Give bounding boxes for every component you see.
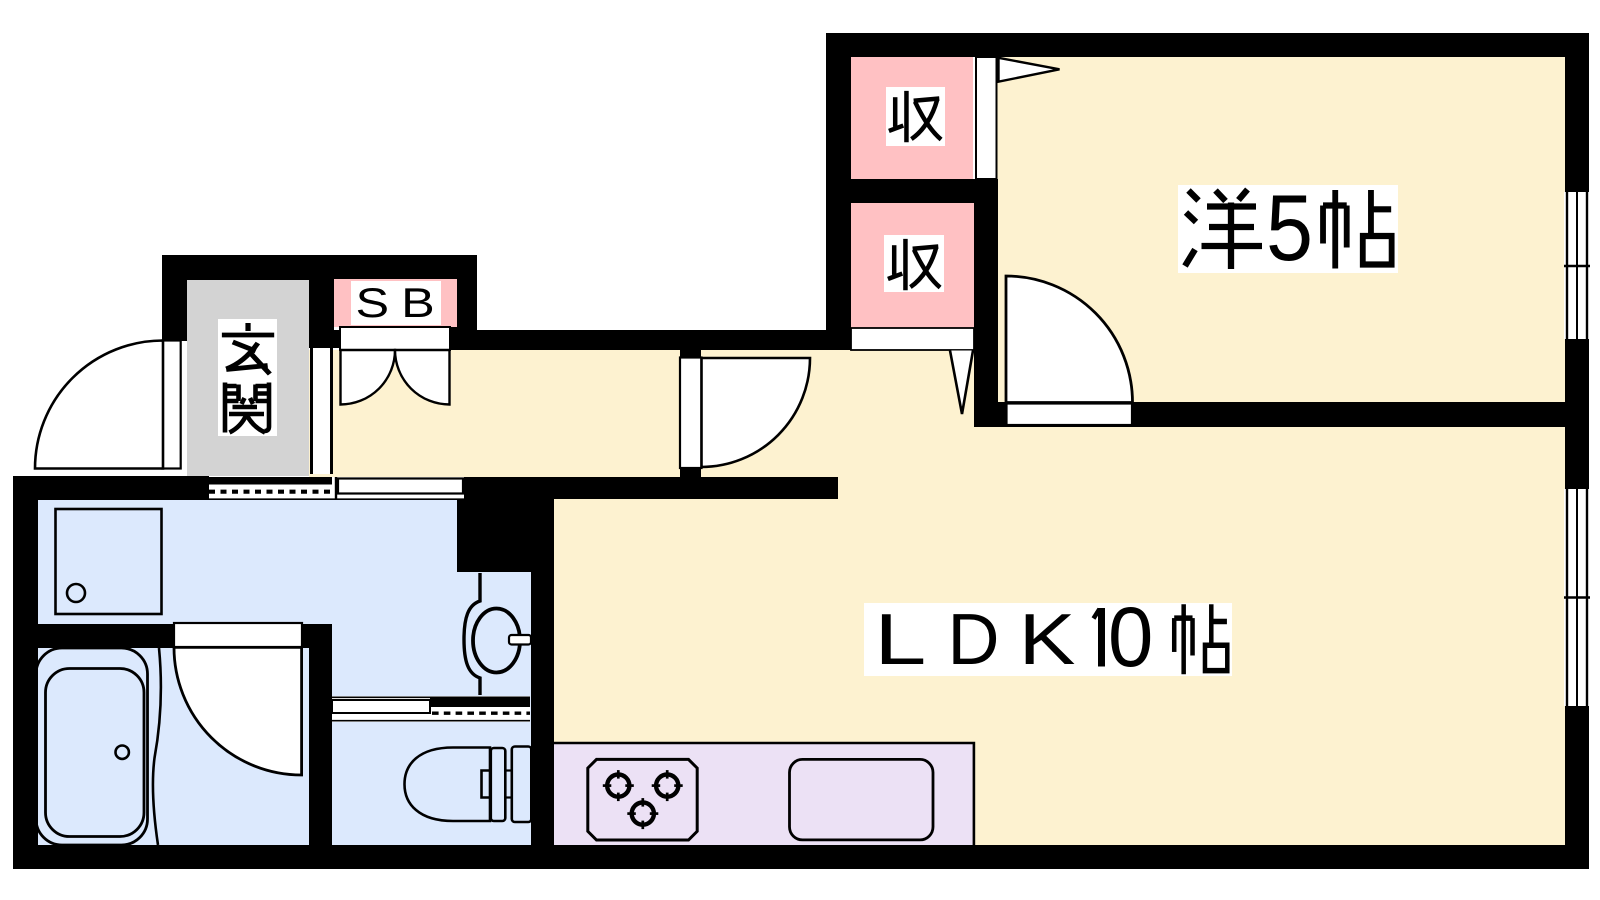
svg-text:K: K <box>1019 599 1076 679</box>
svg-text:L: L <box>874 598 926 679</box>
svg-text:SB: SB <box>356 279 447 326</box>
svg-text:0: 0 <box>1108 590 1153 684</box>
svg-text:5: 5 <box>1266 175 1313 280</box>
svg-text:D: D <box>948 600 1000 680</box>
